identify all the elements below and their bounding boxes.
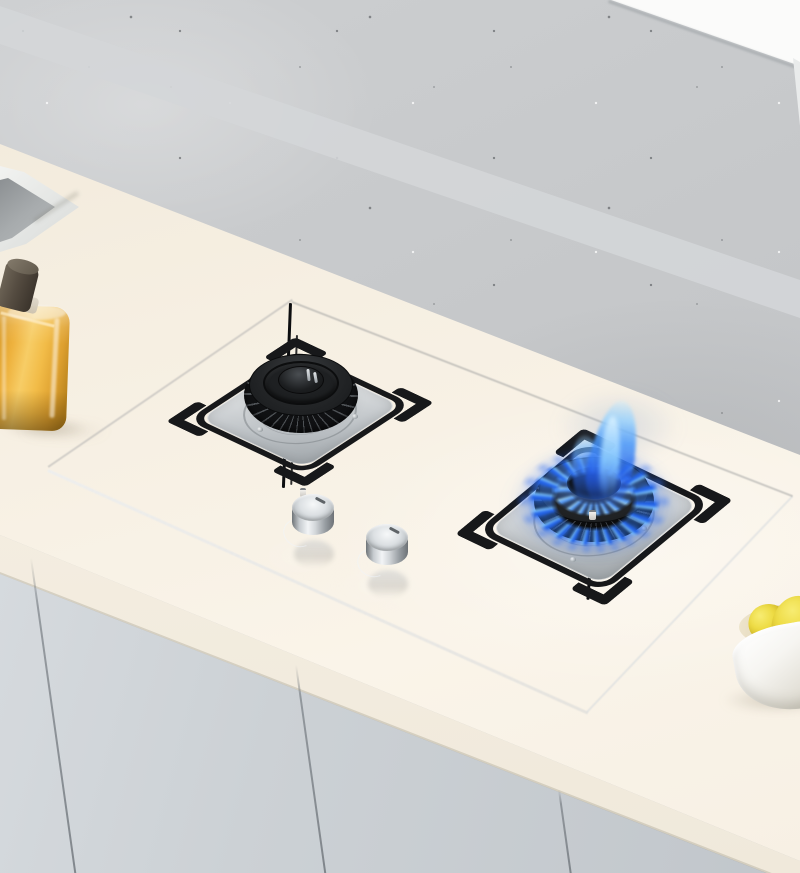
knob-face — [366, 524, 408, 551]
oil-bottle-body — [0, 305, 70, 432]
kitchen-scene — [0, 0, 800, 873]
plate-screw — [257, 427, 263, 432]
knob-face — [292, 494, 334, 521]
control-knob-right — [366, 524, 408, 566]
flame-plume — [560, 400, 680, 525]
bottle-glass-highlight — [2, 316, 6, 420]
control-knob-left — [292, 494, 334, 536]
kitchen-sink — [0, 160, 85, 255]
ignition-electrode — [589, 510, 596, 520]
